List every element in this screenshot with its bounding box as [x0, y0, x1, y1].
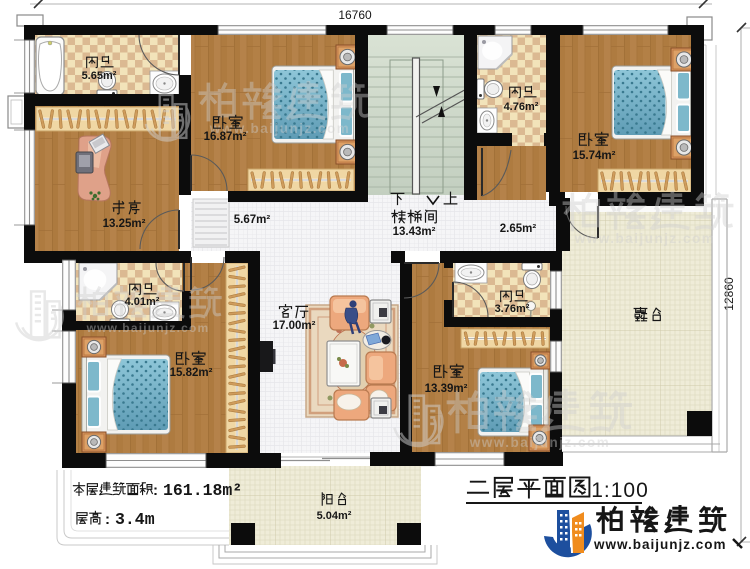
svg-text:1:100: 1:100	[591, 479, 649, 502]
svg-text:4.76m²: 4.76m²	[504, 101, 539, 113]
svg-text:4.01m²: 4.01m²	[125, 296, 160, 308]
svg-text:13.43m²: 13.43m²	[393, 226, 436, 238]
svg-text:17.00m²: 17.00m²	[273, 320, 316, 332]
svg-text:16.87m²: 16.87m²	[204, 131, 247, 143]
svg-text:161.18m²: 161.18m²	[163, 481, 242, 500]
svg-text:13.39m²: 13.39m²	[425, 383, 468, 395]
svg-text:www.baijunjz.com: www.baijunjz.com	[469, 435, 611, 450]
svg-text:15.82m²: 15.82m²	[170, 367, 213, 379]
svg-text:3.4m: 3.4m	[115, 510, 155, 529]
svg-text:16760: 16760	[338, 8, 372, 22]
svg-text:5.65m²: 5.65m²	[82, 70, 117, 82]
svg-text:2.65m²: 2.65m²	[500, 223, 537, 235]
svg-text:www.baijunjz.com: www.baijunjz.com	[593, 537, 727, 552]
svg-text:3.76m²: 3.76m²	[495, 303, 530, 315]
svg-text:12860: 12860	[722, 277, 736, 311]
svg-text:5.04m²: 5.04m²	[317, 510, 352, 522]
svg-text:15.74m²: 15.74m²	[573, 150, 616, 162]
svg-text::: :	[153, 482, 158, 499]
svg-text::: :	[105, 511, 110, 528]
svg-text:13.25m²: 13.25m²	[103, 218, 146, 230]
svg-text:5.67m²: 5.67m²	[234, 214, 271, 226]
svg-text:www.baijunjz.com: www.baijunjz.com	[574, 231, 716, 246]
svg-text:www.baijunjz.com: www.baijunjz.com	[86, 321, 210, 335]
